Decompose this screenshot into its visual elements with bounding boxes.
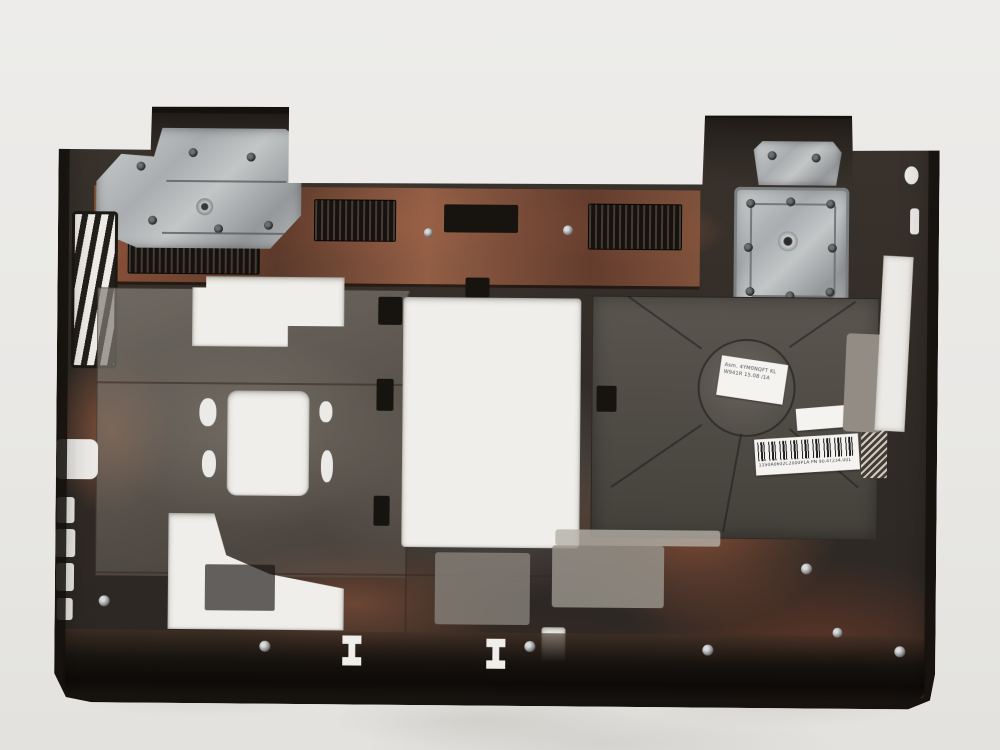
laptop-bottom-case: Asm. 4YM0NQFT KL W941R 15.08 /1A 11S0A06… [54,101,940,710]
case-outer-rim [54,101,940,710]
